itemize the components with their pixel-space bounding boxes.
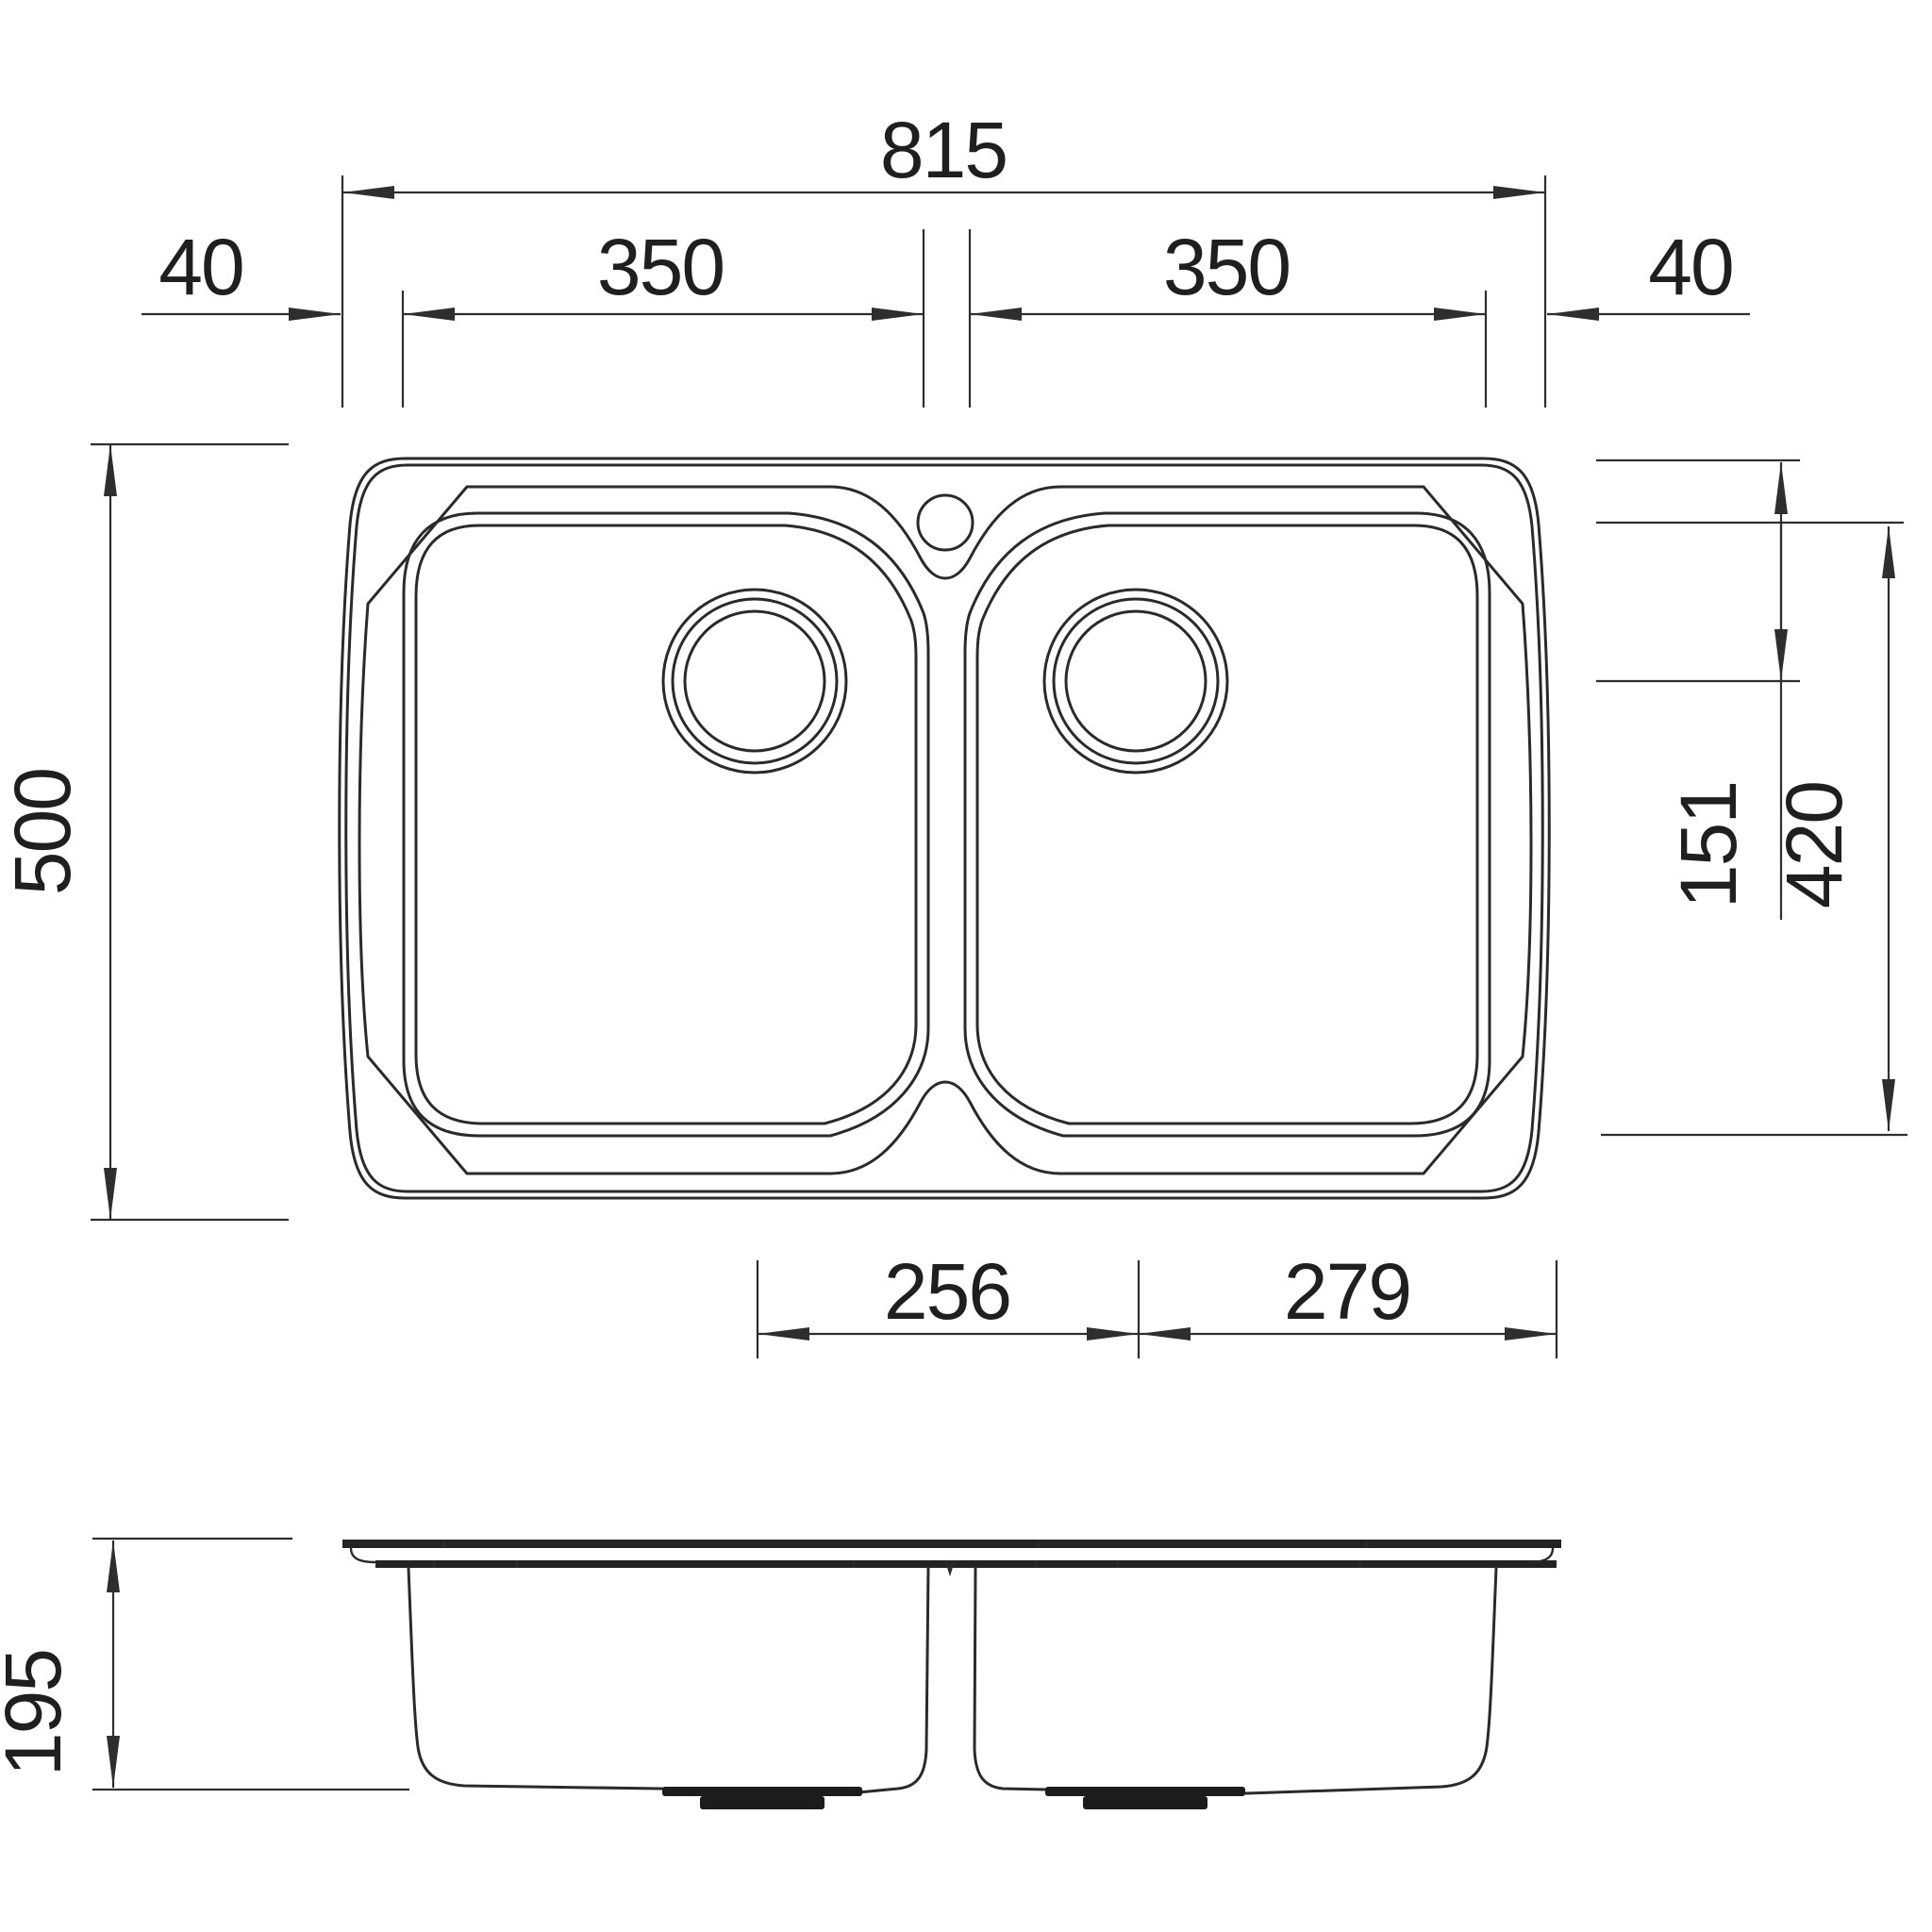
dim-bowl-depth: 195: [0, 1541, 113, 1788]
dim-waste-centre-spacing: 256: [758, 1247, 1139, 1336]
left-waste-trap: [662, 1787, 862, 1809]
left-bowl-profile: [408, 1568, 928, 1792]
right-waste-trap: [1045, 1787, 1245, 1809]
dim-bowl-depth-label: 195: [0, 1650, 77, 1776]
dim-overall-width-label: 815: [880, 106, 1007, 194]
dim-left-rim: 40: [142, 223, 341, 314]
plan-view: [340, 458, 1550, 1198]
sink-rim-bar: [375, 1560, 1557, 1568]
dim-waste-centre-to-edge-label: 279: [1284, 1247, 1410, 1336]
sink-outer-edge: [340, 458, 1550, 1198]
dim-left-bowl-width-label: 350: [597, 223, 724, 311]
dim-right-rim: 40: [1547, 223, 1750, 314]
dim-bowl-inner-length-label: 420: [1770, 782, 1858, 908]
dim-overall-depth: 500: [0, 444, 110, 1220]
dim-bowl-inner-length: 420: [1770, 526, 1889, 1131]
flange-step-left: [351, 1548, 375, 1562]
tap-hole: [918, 495, 973, 550]
deck-line: [359, 487, 1531, 1174]
dim-waste-centre-to-edge: 279: [1139, 1247, 1557, 1336]
dim-right-bowl-width-label: 350: [1163, 223, 1290, 311]
left-bowl-inner: [416, 525, 916, 1124]
right-drain: [1044, 590, 1227, 773]
dim-left-rim-label: 40: [158, 223, 242, 311]
drawing-canvas: 815 350 350 40 40 500: [0, 0, 1932, 1932]
right-bowl-inner: [977, 525, 1477, 1124]
right-bowl-outer: [965, 513, 1490, 1136]
counter-flange: [342, 1540, 1561, 1548]
dim-waste-centre-from-top-label: 151: [1664, 782, 1753, 908]
sink-dimension-drawing: 815 350 350 40 40 500: [0, 0, 1932, 1932]
right-bowl-profile: [974, 1568, 1496, 1793]
dim-right-bowl-width: 350: [970, 223, 1486, 314]
left-bowl-outer: [404, 513, 928, 1136]
dim-left-bowl-width: 350: [403, 223, 924, 314]
elevation-view: [342, 1540, 1561, 1809]
dim-overall-depth-label: 500: [0, 769, 87, 895]
left-drain: [663, 590, 846, 773]
dim-right-rim-label: 40: [1648, 223, 1732, 311]
dim-waste-centre-from-top: 151: [1664, 462, 1781, 920]
dim-overall-width: 815: [342, 106, 1545, 194]
dim-waste-centre-spacing-label: 256: [884, 1247, 1010, 1336]
flange-step-right: [1528, 1548, 1553, 1562]
dimension-annotations: 815 350 350 40 40 500: [0, 106, 1907, 1790]
